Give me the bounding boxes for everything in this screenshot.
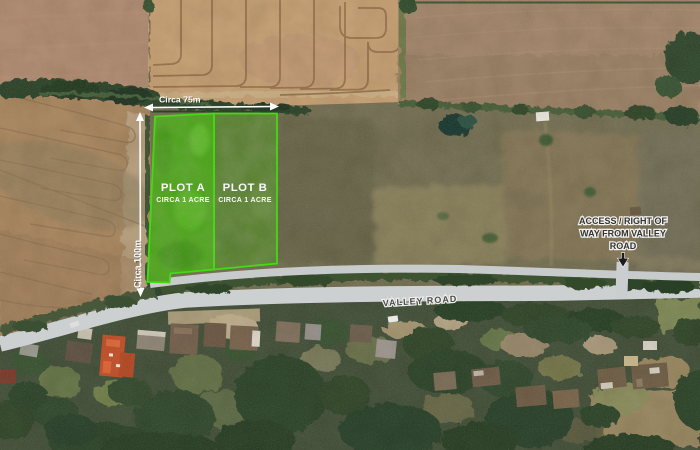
svg-text:Circa 100m: Circa 100m [133,240,143,288]
svg-text:ROAD: ROAD [610,241,637,251]
svg-text:ACCESS / RIGHT OF: ACCESS / RIGHT OF [579,216,668,226]
svg-text:WAY FROM VALLEY: WAY FROM VALLEY [580,229,666,239]
svg-text:Circa 75m: Circa 75m [159,95,201,105]
